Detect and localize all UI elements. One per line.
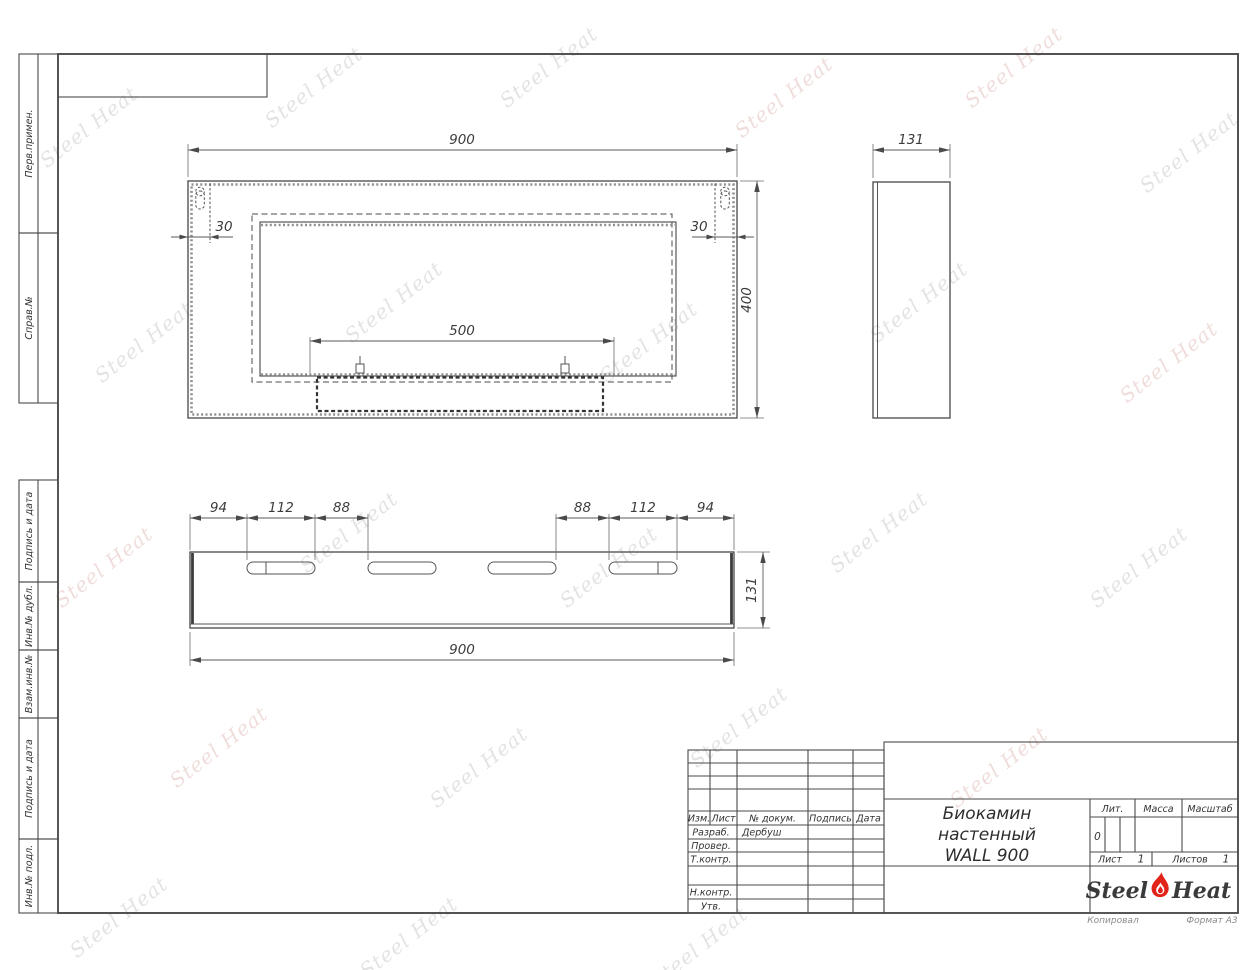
front-niche-hidden-outline (252, 214, 672, 382)
dim-slot-right-edge-label: 94 (697, 500, 714, 516)
top-reserve-box (58, 54, 267, 97)
dim-front-height-label: 400 (739, 287, 755, 313)
tb-col-sign: Подпись (809, 814, 852, 825)
margin-label-inv-dubl: Инв.№ дубл. (24, 585, 35, 647)
margin-label-perv: Перв.примен. (24, 109, 35, 177)
dim-slot-right-width-label: 112 (630, 500, 656, 516)
tb-tkontr-label: Т.контр. (690, 855, 731, 866)
tb-sheet-label: Лист (1097, 855, 1123, 866)
drawing-svg: Перв.примен. Справ.№ Подпись и дата Инв.… (0, 0, 1255, 970)
dim-slot-left-width-label: 112 (268, 500, 294, 516)
copied-label: Копировал (1087, 916, 1139, 926)
steelheat-logo: Steel Heat (1086, 872, 1232, 904)
logo-steel-text: Steel (1086, 878, 1148, 904)
front-view: 900 400 500 30 (171, 132, 764, 418)
vent-slot-3 (488, 562, 556, 574)
tb-col-date: Дата (855, 814, 881, 825)
tb-lit-value: 0 (1094, 831, 1101, 843)
burner-clip-left (356, 356, 364, 373)
dim-slot-left-edge-label: 94 (210, 500, 227, 516)
dim-front-height: 400 (739, 181, 764, 418)
doc-title-line3: WALL 900 (945, 846, 1029, 866)
side-view: 131 (873, 132, 950, 418)
burner-clip-right (561, 356, 569, 373)
tb-razrab-label: Разраб. (692, 828, 729, 839)
bottom-view: 94 112 88 88 112 94 900 131 (190, 500, 770, 666)
title-block: Изм. Лист № докум. Подпись Дата Разраб. … (688, 742, 1238, 913)
dim-offset-right-label: 30 (690, 219, 707, 235)
dim-slot-left-gap-label: 88 (333, 500, 350, 516)
tb-col-izm: Изм. (688, 814, 710, 825)
tb-lit-label: Лит. (1101, 804, 1124, 815)
tb-col-list: Лист (710, 814, 736, 825)
tb-scale-label: Масштаб (1187, 804, 1232, 815)
tb-sheet-value: 1 (1138, 854, 1145, 866)
fuel-tray-outline (317, 378, 603, 412)
tb-prover-label: Провер. (691, 841, 730, 852)
margin-label-podpis2: Подпись и дата (24, 739, 35, 818)
tb-col-doc: № докум. (748, 814, 796, 825)
dim-offset-left-label: 30 (215, 219, 232, 235)
vent-slot-1 (247, 562, 315, 574)
tb-utv-label: Утв. (701, 902, 721, 913)
front-seam-border (192, 185, 734, 415)
dim-front-width-label: 900 (449, 132, 475, 148)
logo-heat-text: Heat (1171, 878, 1231, 904)
keyhole-right (715, 184, 729, 244)
format-label: Формат А3 (1186, 916, 1238, 926)
doc-title-line1: Биокамин (943, 804, 1032, 824)
bottom-outline (190, 552, 734, 628)
dim-side-width: 131 (873, 132, 950, 178)
dim-slot-right-gap-label: 88 (574, 500, 591, 516)
doc-title-line2: настенный (938, 825, 1036, 845)
dim-front-width: 900 (188, 132, 737, 177)
side-outline (873, 182, 950, 418)
margin-label-inv-podl: Инв.№ подл. (24, 845, 35, 908)
tb-nkontr-label: Н.контр. (690, 888, 733, 899)
dim-bottom-depth-label: 131 (744, 577, 760, 603)
tb-mass-label: Масса (1143, 804, 1173, 815)
margin-label-sprav: Справ.№ (24, 296, 35, 339)
margin-label-podpis1: Подпись и дата (24, 491, 35, 570)
dim-side-width-label: 131 (898, 132, 924, 148)
frame (58, 54, 1238, 913)
tb-razrab-value: Дербуш (741, 828, 782, 839)
flame-icon (1152, 872, 1169, 897)
dim-offset-right: 30 (690, 219, 754, 239)
dim-bottom-width: 900 (190, 632, 734, 666)
margin-label-vzam: Взам.инв.№ (24, 655, 35, 714)
drawing-sheet: Steel Heat Steel Heat Steel Heat Steel H… (0, 0, 1255, 970)
dim-offset-left: 30 (171, 219, 233, 239)
dim-bottom-depth: 131 (737, 552, 770, 628)
tb-sheets-label: Листов (1171, 855, 1208, 866)
dim-burner-width-label: 500 (449, 323, 475, 339)
dim-bottom-width-label: 900 (449, 642, 475, 658)
dim-slots: 94 112 88 88 112 94 (190, 500, 734, 560)
vent-slot-2 (368, 562, 436, 574)
tb-sheets-value: 1 (1223, 854, 1230, 866)
left-margin-column: Перв.примен. Справ.№ Подпись и дата Инв.… (19, 54, 58, 913)
keyhole-left (196, 184, 210, 244)
vent-slot-4 (609, 562, 677, 574)
